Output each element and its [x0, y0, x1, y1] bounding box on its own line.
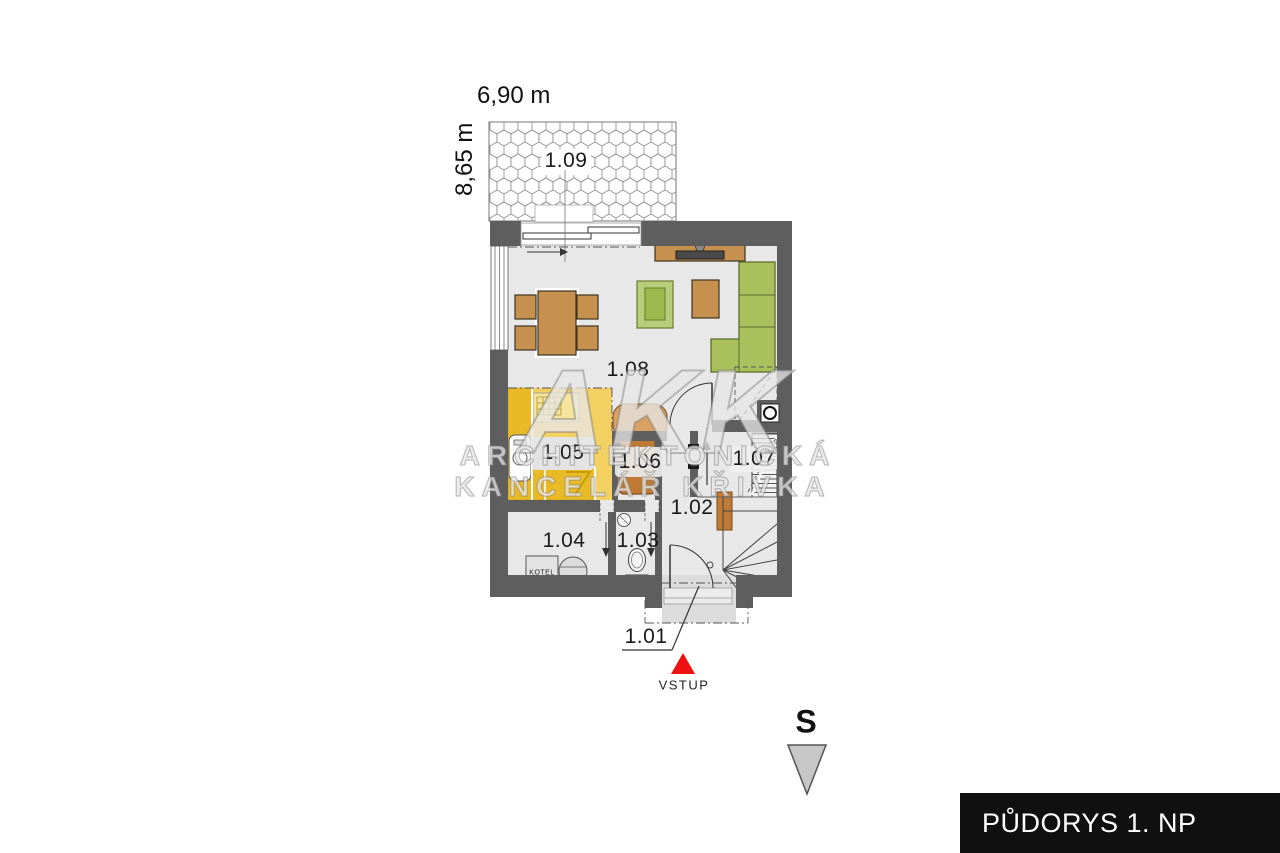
entrance-arrow: [671, 653, 695, 674]
room-label-1-04: 1.04: [543, 529, 586, 553]
room-label-1-08: 1.08: [607, 358, 650, 382]
room-label-1-01: 1.01: [625, 625, 668, 649]
chimney: [757, 400, 783, 426]
room-label-1-06: 1.06: [619, 450, 662, 474]
north-label: S: [795, 704, 816, 741]
room-label-1-07: 1.07: [733, 447, 776, 471]
entrance-label: VSTUP: [659, 678, 710, 693]
room-label-1-03: 1.03: [617, 529, 660, 553]
drawing-title: PŮDORYS 1. NP: [982, 808, 1197, 839]
dining-table: [538, 291, 576, 355]
tv-screen: [676, 251, 724, 259]
title-block: PŮDORYS 1. NP: [960, 793, 1280, 853]
floor-plan-page: 1.09 1.08 1.05 1.06 1.07 1.02 1.04 1.03 …: [0, 0, 1280, 853]
floor-plan-drawing: [0, 0, 1280, 853]
side-table: [692, 280, 719, 318]
room-label-1-02: 1.02: [671, 496, 714, 520]
boiler-label: KOTEL: [529, 570, 554, 577]
north-arrow: [788, 745, 826, 794]
dimension-height: 8,65 m: [451, 123, 479, 196]
room-label-1-09: 1.09: [545, 149, 588, 173]
dining-chair: [577, 295, 598, 319]
dining-chair: [515, 295, 536, 319]
dimension-width: 6,90 m: [477, 82, 550, 110]
room-label-1-05: 1.05: [542, 441, 585, 465]
dining-chair: [577, 326, 598, 350]
dining-chair: [515, 326, 536, 350]
